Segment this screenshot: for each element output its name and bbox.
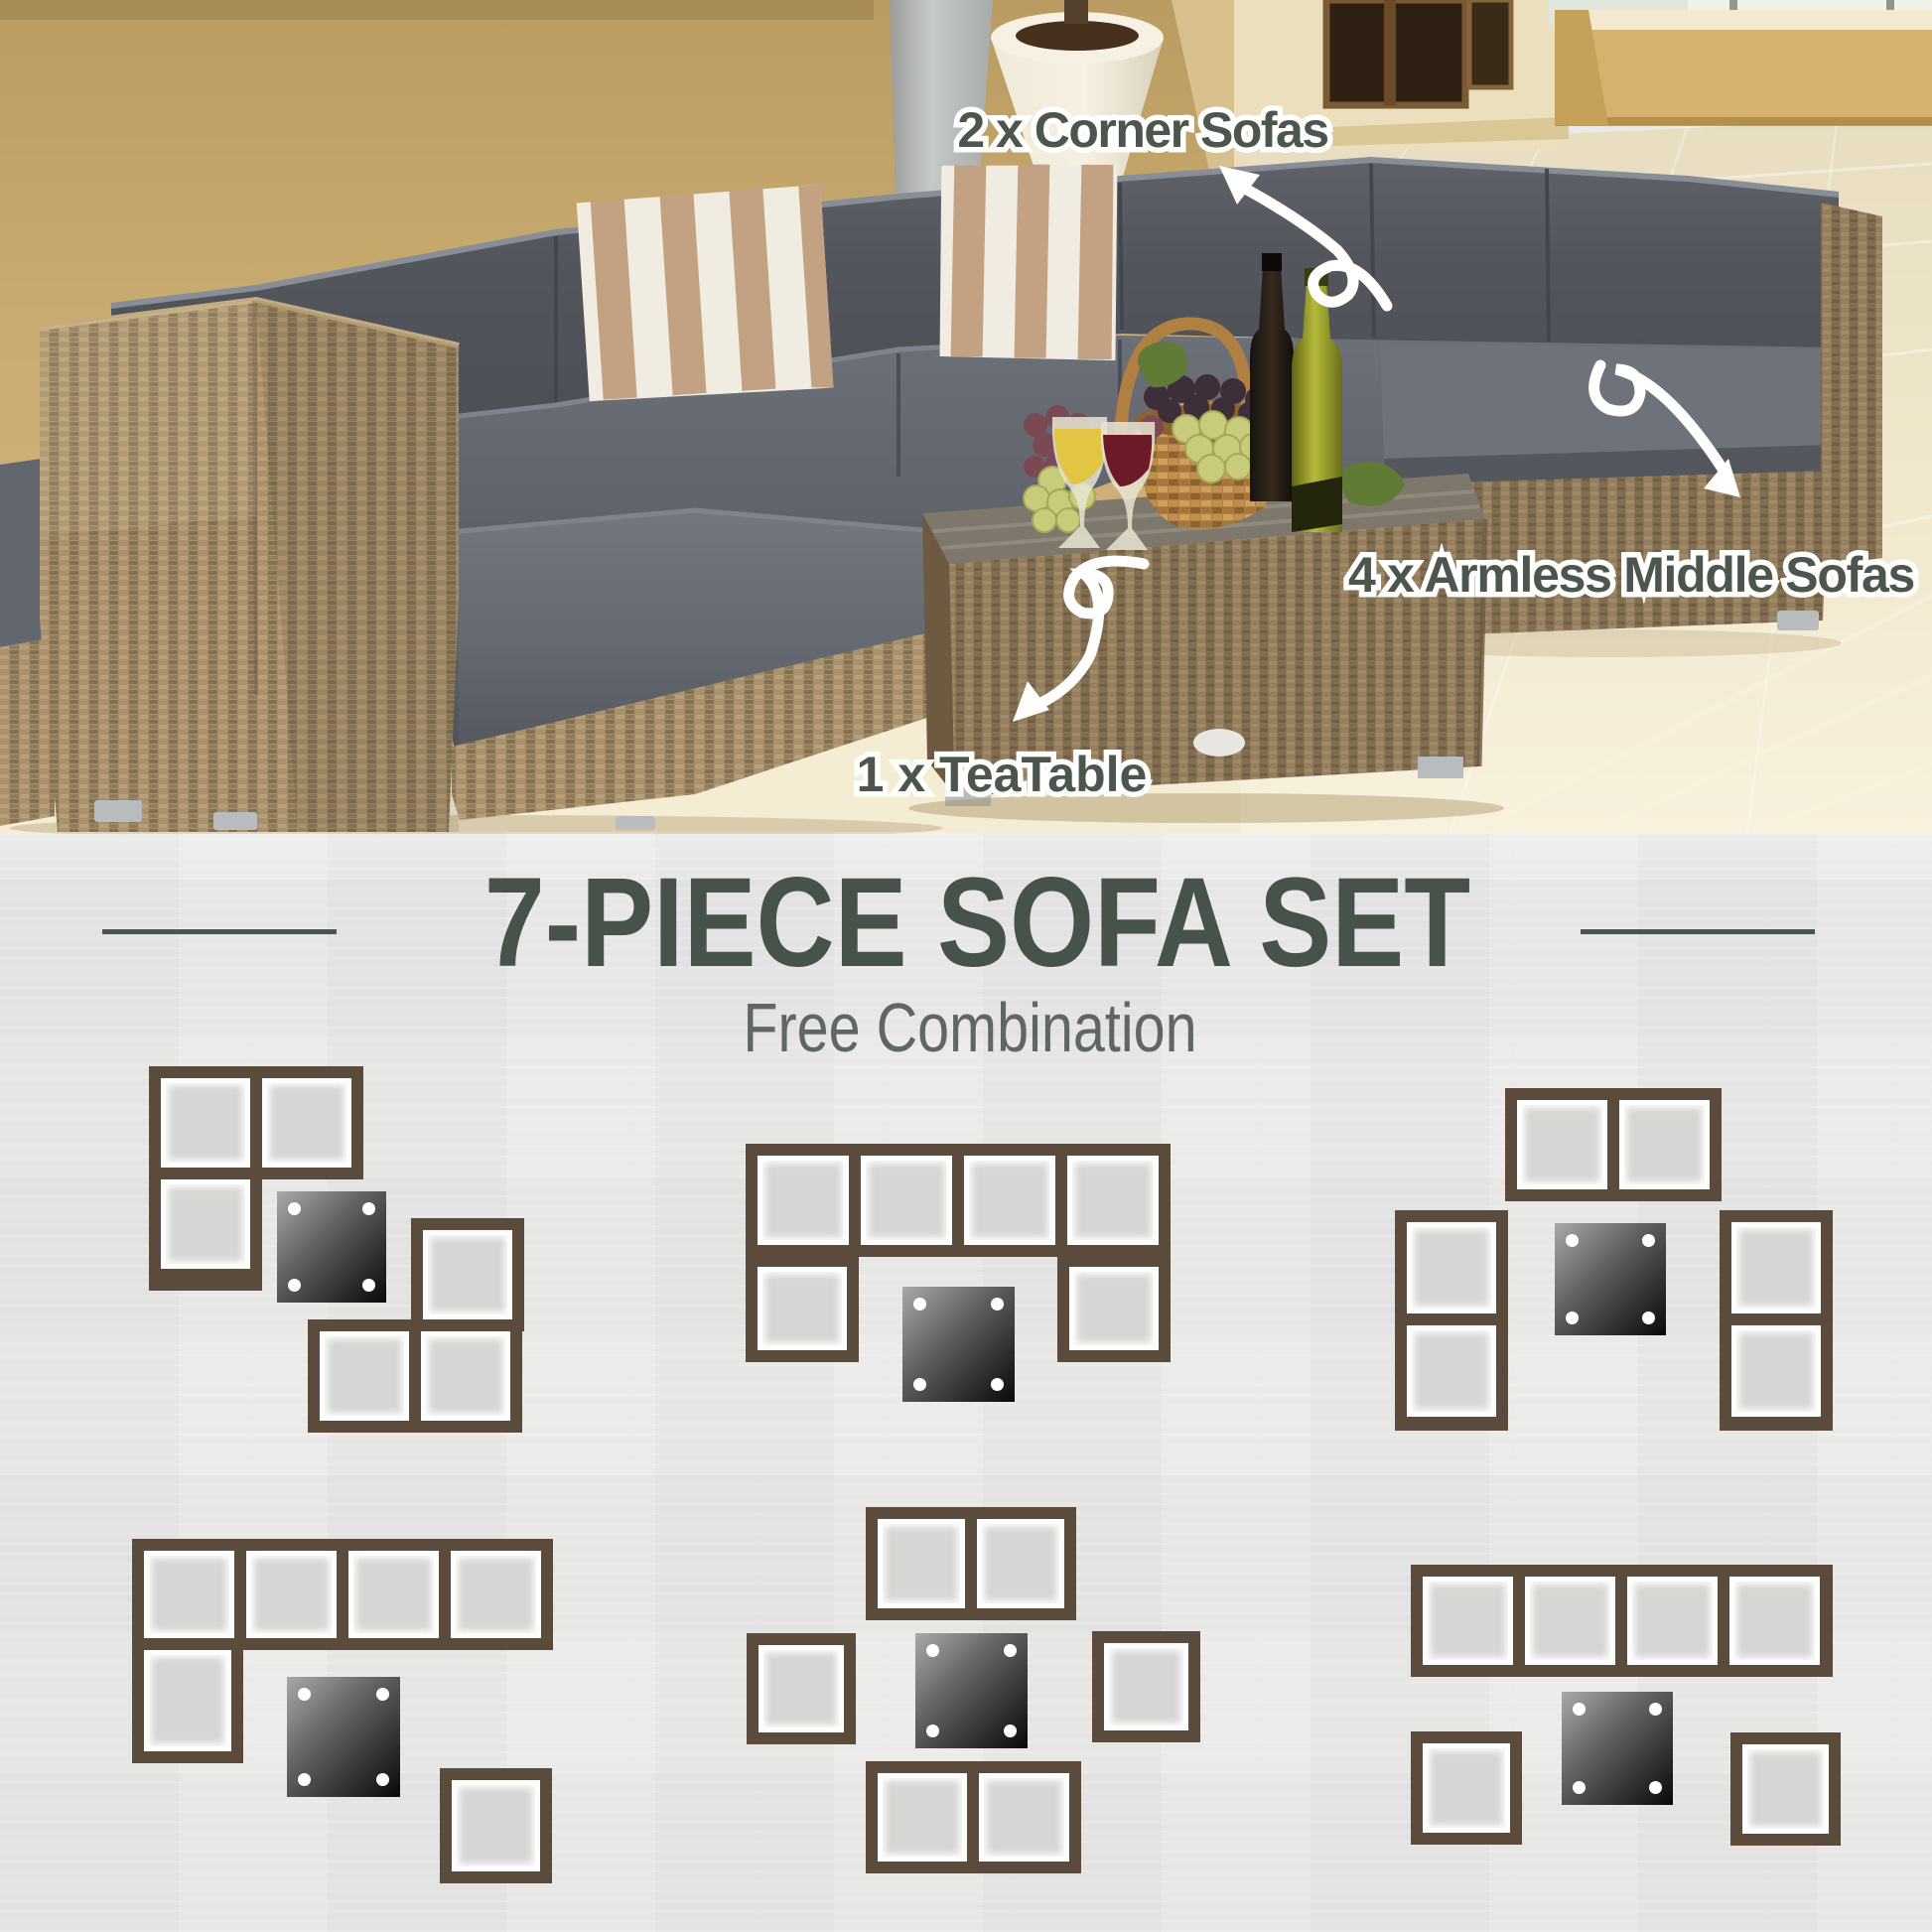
svg-text:1 x TeaTable: 1 x TeaTable xyxy=(857,747,1148,802)
svg-text:2 x Corner Sofas: 2 x Corner Sofas xyxy=(957,102,1327,158)
svg-text:4 x Armless Middle Sofas: 4 x Armless Middle Sofas xyxy=(1348,547,1914,603)
